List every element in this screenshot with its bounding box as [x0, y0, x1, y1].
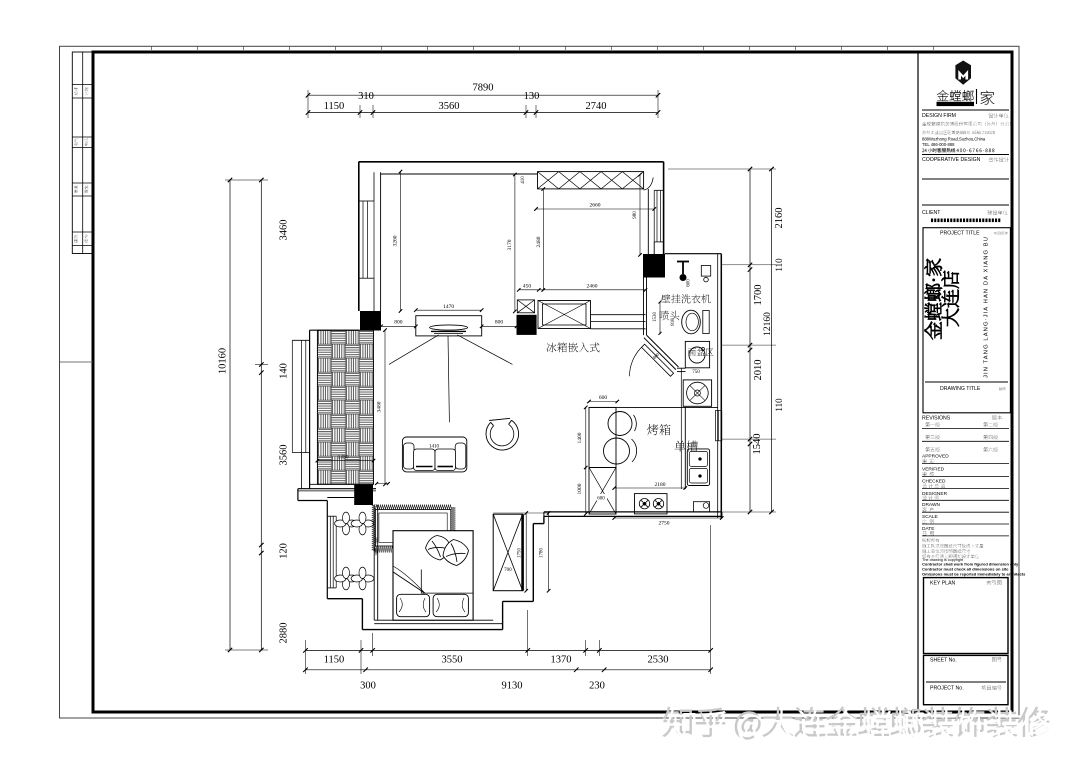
svg-text:800: 800: [495, 320, 504, 326]
svg-text:980: 980: [633, 211, 638, 219]
svg-text:110: 110: [774, 258, 784, 272]
svg-text:410: 410: [521, 176, 526, 184]
svg-text:1530: 1530: [653, 312, 658, 323]
svg-text:DRAWN: DRAWN: [922, 502, 940, 508]
svg-text:COOPERATIVE DESIGN: COOPERATIVE DESIGN: [922, 157, 981, 163]
svg-text:3560: 3560: [278, 445, 289, 466]
svg-text:DRAWING TITLE: DRAWING TITLE: [940, 386, 981, 392]
svg-text:3560: 3560: [439, 101, 460, 112]
svg-text:310: 310: [358, 91, 374, 102]
svg-text:VERIFIED: VERIFIED: [922, 466, 945, 472]
svg-text:810: 810: [671, 318, 676, 326]
svg-text:TEL 486-000-888: TEL 486-000-888: [922, 142, 955, 147]
svg-text:1480: 1480: [338, 455, 349, 461]
svg-text:SCALE: SCALE: [922, 514, 938, 520]
svg-text:2880: 2880: [278, 623, 289, 644]
svg-text:KEY PLAN: KEY PLAN: [930, 581, 956, 587]
svg-text:REVISIONS: REVISIONS: [922, 416, 951, 422]
svg-text:1370: 1370: [551, 655, 572, 666]
svg-text:3260: 3260: [393, 235, 399, 246]
svg-text:3480: 3480: [377, 401, 383, 412]
svg-text:DATE: DATE: [922, 526, 934, 532]
svg-text:600: 600: [599, 395, 608, 401]
svg-text:PROJECT No.: PROJECT No.: [930, 686, 964, 692]
svg-text:2740: 2740: [586, 101, 607, 112]
svg-text:140: 140: [278, 363, 289, 379]
svg-text:1780: 1780: [540, 548, 545, 559]
svg-text:GOLD MANTIS HOME: GOLD MANTIS HOME: [939, 102, 971, 106]
svg-text:7890: 7890: [473, 83, 494, 94]
svg-text:888Wuzhong Road,Suzhou,China: 888Wuzhong Road,Suzhou,China: [922, 137, 986, 142]
svg-text:1750: 1750: [518, 548, 523, 559]
svg-text:600: 600: [597, 497, 605, 502]
svg-text:600: 600: [687, 279, 692, 287]
svg-text:1000: 1000: [577, 483, 583, 494]
svg-text:12160: 12160: [763, 312, 773, 336]
svg-text:450: 450: [523, 284, 532, 290]
svg-text:2460: 2460: [587, 284, 598, 290]
svg-text:SHEET No.: SHEET No.: [930, 658, 957, 664]
svg-text:2480: 2480: [536, 236, 542, 247]
svg-text:120: 120: [278, 543, 289, 559]
svg-text:CLIENT: CLIENT: [922, 210, 941, 216]
svg-text:230: 230: [589, 681, 605, 692]
svg-text:3170: 3170: [507, 239, 513, 250]
svg-text:JIN TANG LANG·JIA HAN DA XIANG: JIN TANG LANG·JIA HAN DA XIANG BU: [984, 236, 990, 378]
svg-text:2180: 2180: [655, 482, 666, 488]
svg-text:APPROVED: APPROVED: [922, 454, 949, 460]
svg-text:300: 300: [360, 681, 376, 692]
svg-text:2010: 2010: [753, 360, 764, 381]
svg-text:2660: 2660: [590, 203, 601, 209]
svg-text:9130: 9130: [502, 681, 523, 692]
svg-text:10160: 10160: [218, 348, 229, 374]
svg-text:1400: 1400: [577, 432, 583, 443]
svg-text:DESIGN FIRM: DESIGN FIRM: [922, 113, 956, 119]
svg-text:Omissions must be reported imm: Omissions must be reported immediately t…: [922, 571, 1026, 576]
svg-text:110: 110: [774, 398, 784, 412]
svg-text:1700: 1700: [753, 285, 764, 306]
svg-text:800: 800: [394, 320, 403, 326]
svg-text:1150: 1150: [324, 101, 345, 112]
svg-text:2530: 2530: [648, 655, 669, 666]
svg-text:1150: 1150: [324, 655, 345, 666]
svg-text:750: 750: [692, 370, 700, 375]
svg-text:1540: 1540: [752, 434, 763, 455]
svg-text:3550: 3550: [442, 655, 463, 666]
svg-text:2750: 2750: [659, 521, 670, 527]
svg-text:1410: 1410: [429, 445, 440, 450]
svg-text:130: 130: [524, 91, 540, 102]
svg-text:2160: 2160: [774, 208, 785, 229]
svg-text:700: 700: [504, 568, 512, 573]
svg-text:1470: 1470: [443, 304, 454, 310]
svg-text:3460: 3460: [278, 220, 289, 241]
svg-text:PROJECT TITLE: PROJECT TITLE: [940, 231, 980, 237]
svg-text:CHECKED: CHECKED: [922, 478, 946, 484]
